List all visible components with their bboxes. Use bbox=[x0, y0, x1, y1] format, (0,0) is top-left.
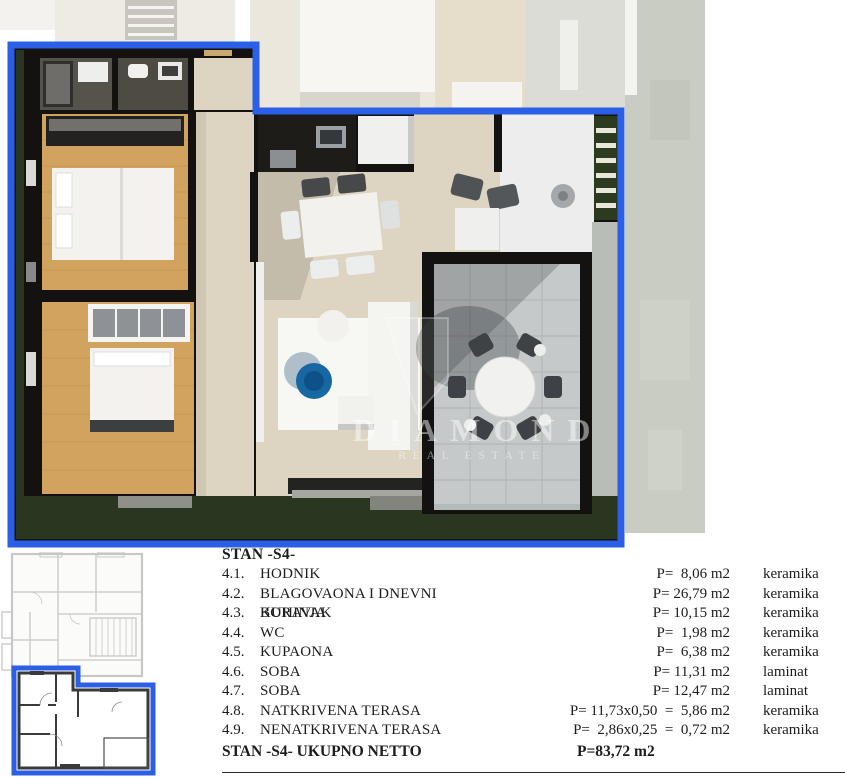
room-name: SOBA bbox=[260, 682, 500, 702]
row-number: 4.5. bbox=[222, 643, 260, 663]
row-number: 4.8. bbox=[222, 702, 260, 722]
room-name: KUPAONA bbox=[260, 643, 500, 663]
row-number: 4.3. bbox=[222, 604, 260, 624]
listing-sheet: DIAMOND REAL ESTATE bbox=[0, 0, 845, 778]
bedroom-2 bbox=[42, 302, 194, 494]
bedroom-1 bbox=[42, 114, 188, 290]
room-area: P= 10,15 m2 bbox=[500, 604, 730, 624]
apartment-interior bbox=[14, 48, 620, 541]
room-name: WC bbox=[260, 624, 500, 644]
room-name: SOBA bbox=[260, 663, 500, 683]
room-schedule-table: STAN -S4- 4.1.HODNIKP= 8,06 m2keramika4.… bbox=[222, 545, 845, 773]
room-area: P= 11,73x0,50 = 5,86 m2 bbox=[500, 702, 730, 722]
table-row: 4.5.KUPAONAP= 6,38 m2keramika bbox=[222, 643, 845, 663]
room-material: keramika bbox=[730, 565, 845, 585]
row-number: 4.6. bbox=[222, 663, 260, 683]
row-number: 4.9. bbox=[222, 721, 260, 741]
table-underline bbox=[222, 772, 845, 773]
room-area: P= 11,31 m2 bbox=[500, 663, 730, 683]
room-material: laminat bbox=[730, 682, 845, 702]
table-row: 4.6.SOBAP= 11,31 m2laminat bbox=[222, 663, 845, 683]
table-row: 4.1.HODNIKP= 8,06 m2keramika bbox=[222, 565, 845, 585]
faded-building-plan bbox=[2, 552, 142, 676]
room-name: NENATKRIVENA TERASA bbox=[260, 721, 500, 741]
table-row: 4.3.KUHINJAP= 10,15 m2keramika bbox=[222, 604, 845, 624]
grass-strip-left bbox=[16, 50, 24, 539]
room-name: HODNIK bbox=[260, 565, 500, 585]
table-title: STAN -S4- bbox=[222, 545, 845, 565]
room-area: P= 2,86x0,25 = 0,72 m2 bbox=[500, 721, 730, 741]
room-material: laminat bbox=[730, 663, 845, 683]
room-name: NATKRIVENA TERASA bbox=[260, 702, 500, 722]
room-rows: 4.1.HODNIKP= 8,06 m2keramika4.2.BLAGOVAO… bbox=[222, 565, 845, 741]
hallway bbox=[194, 50, 254, 496]
room-material: keramika bbox=[730, 624, 845, 644]
row-number: 4.4. bbox=[222, 624, 260, 644]
room-material: keramika bbox=[730, 643, 845, 663]
room-area: P= 6,38 m2 bbox=[500, 643, 730, 663]
row-number: 4.7. bbox=[222, 682, 260, 702]
room-material: keramika bbox=[730, 604, 845, 624]
highlighted-unit-plan bbox=[14, 668, 153, 773]
watermark-title: DIAMOND bbox=[353, 412, 604, 448]
watermark-subtitle: REAL ESTATE bbox=[398, 448, 546, 462]
building-location-miniplan bbox=[0, 552, 215, 778]
table-row: 4.7.SOBAP= 12,47 m2laminat bbox=[222, 682, 845, 702]
apartment-3d-floor-plan: DIAMOND REAL ESTATE bbox=[0, 0, 705, 548]
table-row: 4.9.NENATKRIVENA TERASAP= 2,86x0,25 = 0,… bbox=[222, 721, 845, 741]
room-material: keramika bbox=[730, 721, 845, 741]
table-row: 4.4.WCP= 1,98 m2keramika bbox=[222, 624, 845, 644]
table-row: 4.2.BLAGOVAONA I DNEVNI BORAVAKP= 26,79 … bbox=[222, 585, 845, 605]
table-row: 4.8.NATKRIVENA TERASAP= 11,73x0,50 = 5,8… bbox=[222, 702, 845, 722]
total-label: STAN -S4- UKUPNO NETTO bbox=[222, 743, 422, 760]
row-number: 4.1. bbox=[222, 565, 260, 585]
room-area: P= 1,98 m2 bbox=[500, 624, 730, 644]
kitchen bbox=[258, 114, 414, 172]
table-total-row: STAN -S4- UKUPNO NETTO P=83,72 m2 bbox=[222, 742, 845, 762]
total-area: P=83,72 m2 bbox=[577, 742, 655, 762]
room-area: P= 8,06 m2 bbox=[500, 565, 730, 585]
room-area: P= 12,47 m2 bbox=[500, 682, 730, 702]
room-name: KUHINJA bbox=[260, 604, 500, 624]
room-material: keramika bbox=[730, 702, 845, 722]
